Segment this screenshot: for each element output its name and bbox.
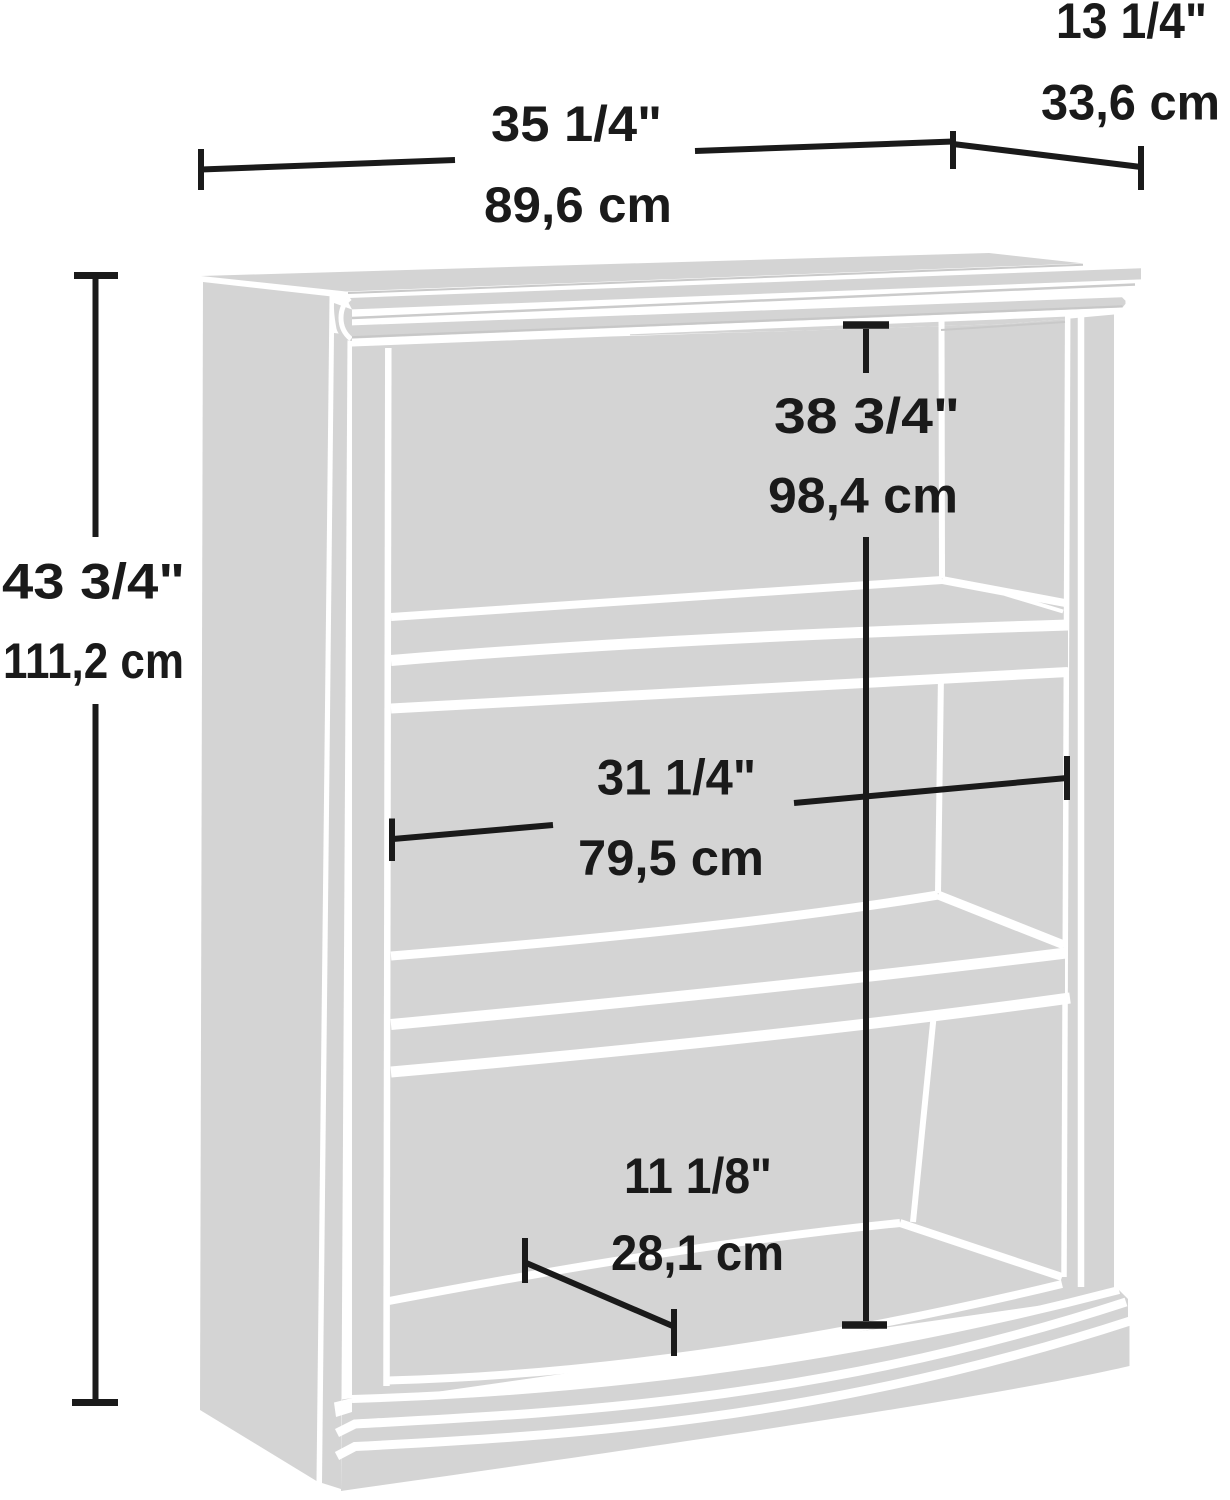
svg-text:79,5 cm: 79,5 cm <box>578 830 764 886</box>
svg-text:13 1/4": 13 1/4" <box>1056 0 1207 49</box>
svg-text:43 3/4": 43 3/4" <box>2 554 185 610</box>
svg-text:35 1/4": 35 1/4" <box>491 96 662 152</box>
svg-text:28,1 cm: 28,1 cm <box>611 1225 784 1281</box>
svg-text:89,6 cm: 89,6 cm <box>484 177 672 233</box>
svg-text:31 1/4": 31 1/4" <box>597 750 756 806</box>
svg-text:11 1/8": 11 1/8" <box>624 1148 772 1204</box>
svg-text:98,4 cm: 98,4 cm <box>768 468 958 524</box>
svg-text:111,2 cm: 111,2 cm <box>3 633 184 689</box>
svg-text:38 3/4": 38 3/4" <box>774 388 960 444</box>
svg-text:33,6 cm: 33,6 cm <box>1041 75 1220 131</box>
